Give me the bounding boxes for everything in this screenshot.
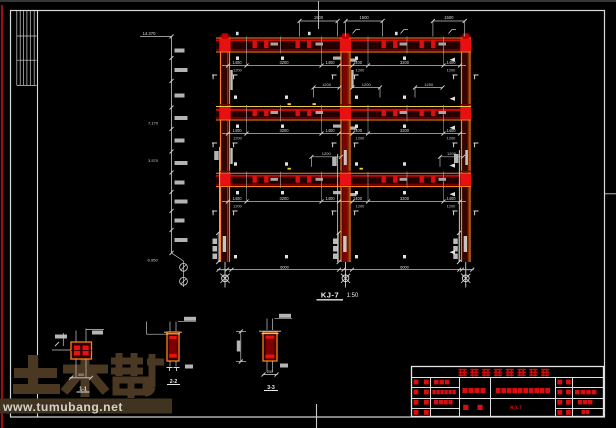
svg-text:1500: 1500 (314, 15, 324, 20)
svg-text:1400: 1400 (232, 128, 242, 133)
svg-text:1:50: 1:50 (347, 293, 359, 299)
svg-text:1500: 1500 (359, 15, 369, 20)
svg-text:KJ-7: KJ-7 (321, 291, 339, 300)
svg-text:7.170: 7.170 (148, 121, 159, 126)
svg-text:350: 350 (78, 373, 84, 377)
svg-text:3200: 3200 (400, 128, 410, 133)
svg-text:1200: 1200 (447, 203, 456, 208)
svg-text:1200: 1200 (447, 151, 457, 156)
svg-text:1400: 1400 (232, 60, 242, 65)
svg-text:1200: 1200 (356, 135, 365, 140)
svg-text:3200: 3200 (400, 60, 410, 65)
svg-text:1200: 1200 (356, 203, 365, 208)
svg-text:1200: 1200 (356, 67, 365, 72)
svg-text:1400: 1400 (325, 196, 335, 201)
svg-text:1200: 1200 (233, 135, 242, 140)
svg-text:3200: 3200 (400, 196, 410, 201)
svg-text:3.570: 3.570 (148, 158, 159, 163)
svg-text:1200: 1200 (447, 67, 456, 72)
svg-text:1400: 1400 (232, 196, 242, 201)
svg-text:1400: 1400 (353, 196, 363, 201)
svg-text:KJ-7: KJ-7 (510, 406, 522, 412)
svg-text:1500: 1500 (444, 15, 454, 20)
svg-text:1200: 1200 (233, 67, 242, 72)
svg-text:3200: 3200 (279, 60, 289, 65)
svg-text:14.370: 14.370 (143, 31, 156, 36)
svg-text:3200: 3200 (279, 196, 289, 201)
svg-text:3200: 3200 (279, 128, 289, 133)
svg-text:-0.950: -0.950 (146, 258, 158, 263)
svg-text:1400: 1400 (325, 128, 335, 133)
svg-text:1200: 1200 (322, 151, 332, 156)
svg-text:250: 250 (267, 370, 273, 374)
svg-text:1400: 1400 (446, 196, 456, 201)
svg-text:3-3: 3-3 (267, 385, 275, 391)
svg-text:1400: 1400 (325, 60, 335, 65)
svg-text:www.tumubang.net: www.tumubang.net (2, 400, 123, 414)
svg-text:1200: 1200 (322, 82, 332, 87)
svg-text:6000: 6000 (280, 265, 288, 269)
svg-text:1200: 1200 (233, 203, 242, 208)
svg-text:1200: 1200 (447, 135, 456, 140)
svg-text:1200: 1200 (362, 82, 372, 87)
svg-text:1200: 1200 (424, 82, 434, 87)
svg-text:6000: 6000 (400, 265, 408, 269)
